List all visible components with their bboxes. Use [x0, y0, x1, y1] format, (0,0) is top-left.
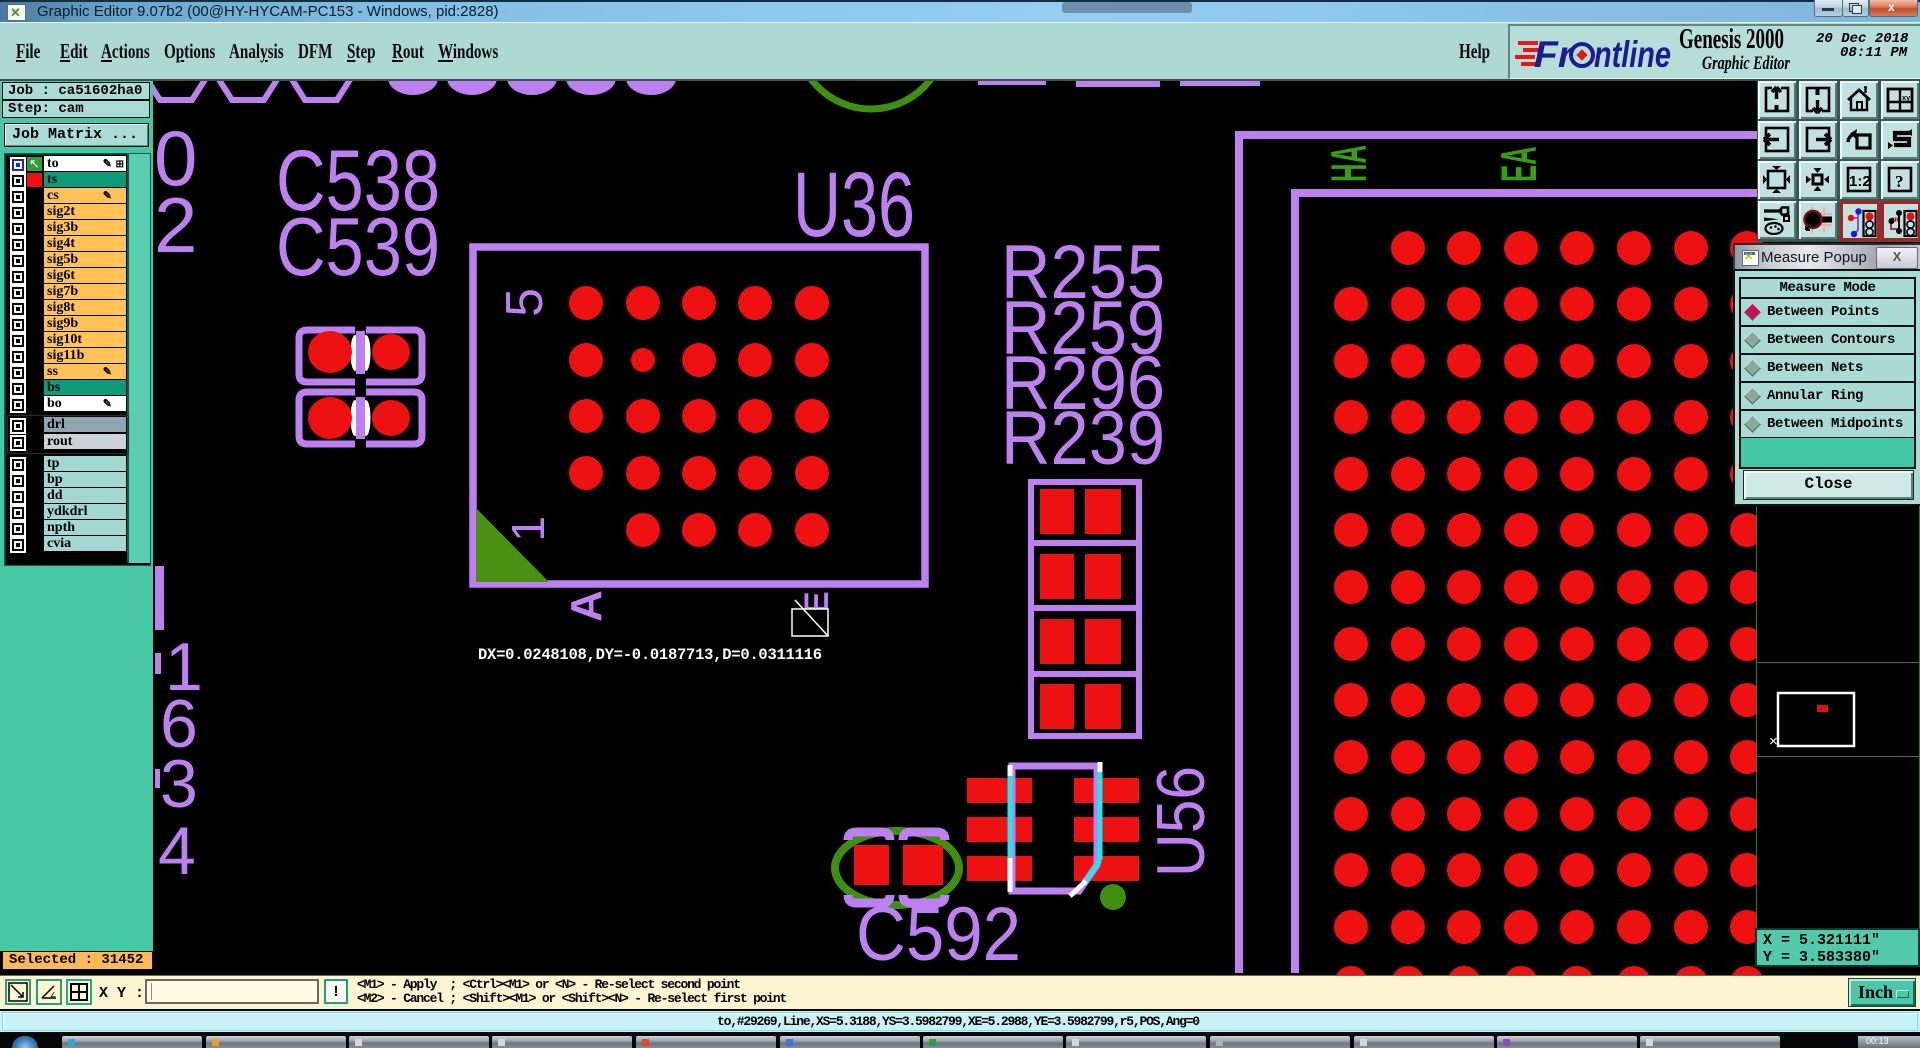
svg-text:1:2: 1:2 [1849, 173, 1871, 190]
svg-text:xy: xy [1902, 93, 1911, 102]
svg-text:U56: U56 [1143, 766, 1219, 877]
svg-text:C539: C539 [276, 200, 440, 293]
svg-text:1: 1 [502, 516, 554, 542]
svg-text:×: × [1769, 733, 1778, 750]
svg-text:A: A [562, 590, 611, 622]
svg-text:?: ? [1895, 172, 1904, 191]
svg-text:4: 4 [158, 813, 196, 889]
svg-text:HA: HA [1322, 145, 1377, 182]
svg-text:U36: U36 [793, 154, 915, 256]
svg-text:3: 3 [160, 746, 198, 822]
svg-text:C592: C592 [856, 892, 1021, 977]
svg-text:2: 2 [154, 181, 197, 269]
svg-text:EA: EA [1492, 146, 1547, 182]
svg-text:DX=0.0248108,DY=-0.0187713,D=0: DX=0.0248108,DY=-0.0187713,D=0.0311116 [478, 646, 822, 664]
svg-text:∠: ∠ [50, 991, 56, 999]
svg-text:5: 5 [496, 288, 554, 317]
svg-text:ntline: ntline [1594, 34, 1671, 75]
svg-text:R239: R239 [1001, 396, 1165, 481]
